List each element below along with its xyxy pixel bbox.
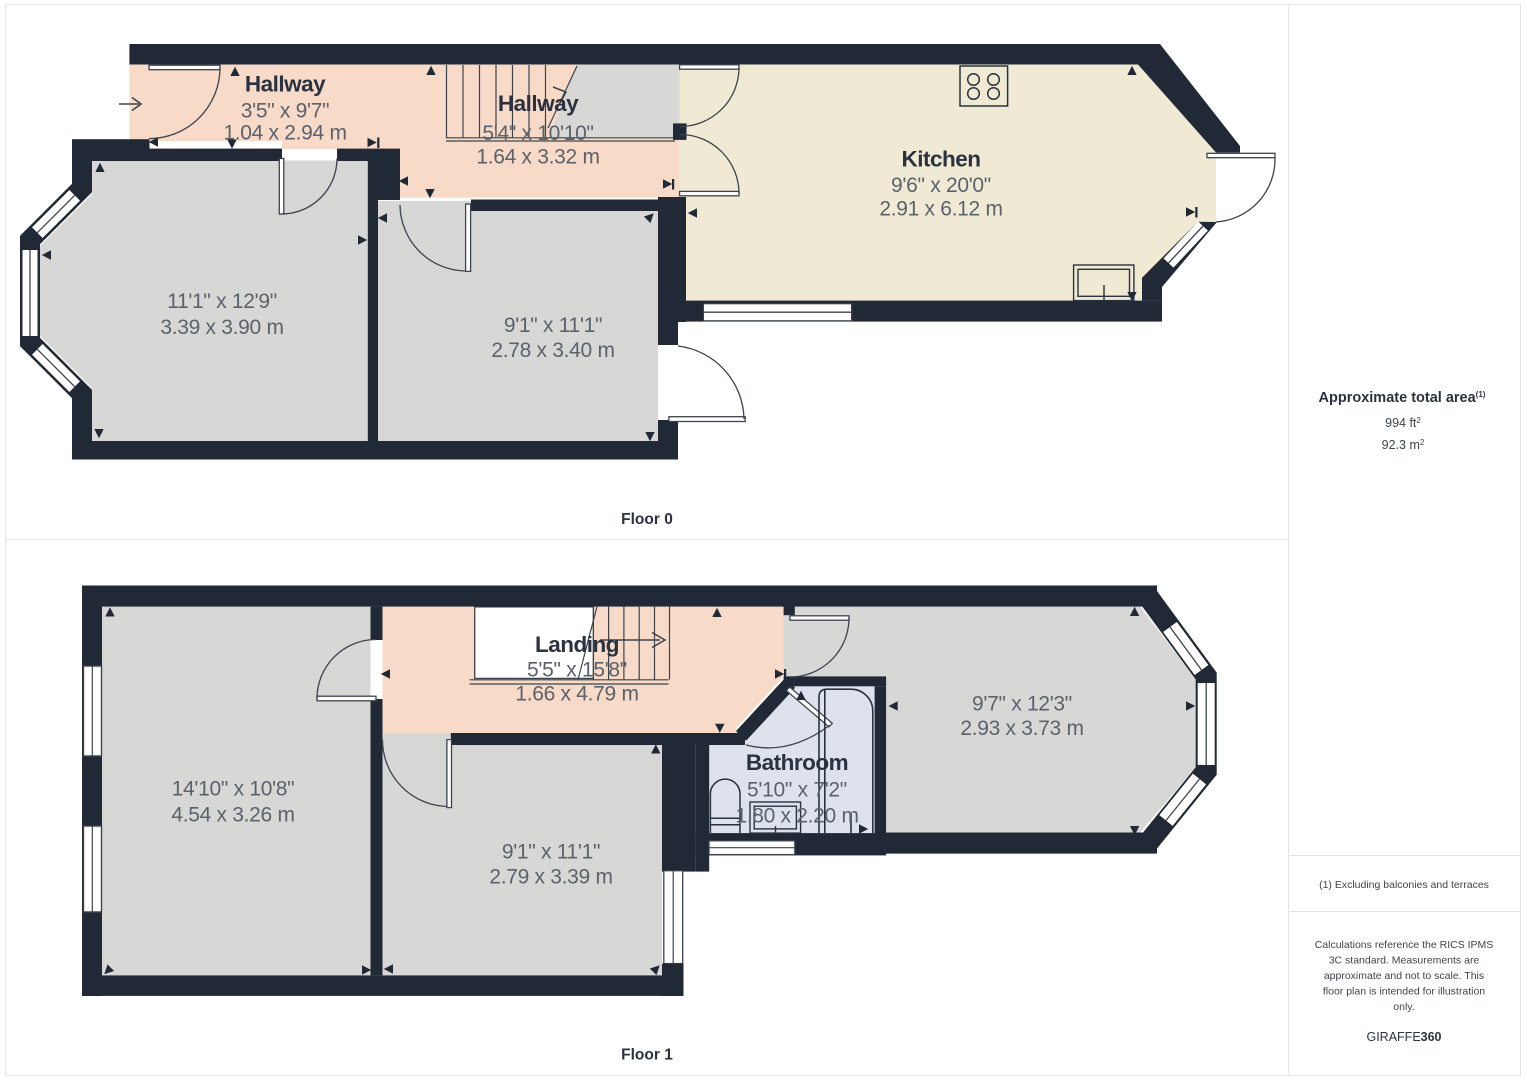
svg-text:GIRAFFE360: GIRAFFE360: [1366, 1030, 1441, 1044]
svg-text:Kitchen: Kitchen: [901, 147, 980, 172]
svg-text:5'4" x 10'10": 5'4" x 10'10": [482, 122, 593, 145]
svg-text:4.54 x 3.26 m: 4.54 x 3.26 m: [171, 804, 294, 827]
svg-text:3.39 x 3.90 m: 3.39 x 3.90 m: [160, 316, 283, 339]
svg-text:11'1" x 12'9": 11'1" x 12'9": [167, 290, 277, 313]
svg-text:only.: only.: [1393, 1001, 1414, 1013]
svg-text:2.93 x 3.73 m: 2.93 x 3.73 m: [960, 717, 1083, 740]
svg-text:1.04 x 2.94 m: 1.04 x 2.94 m: [223, 122, 346, 145]
svg-text:9'1" x 11'1": 9'1" x 11'1": [504, 314, 602, 337]
svg-text:2.79 x 3.39 m: 2.79 x 3.39 m: [489, 866, 612, 889]
svg-text:Approximate total area(1): Approximate total area(1): [1319, 390, 1486, 406]
svg-text:5'10" x 7'2": 5'10" x 7'2": [747, 779, 847, 802]
svg-text:Calculations reference the RIC: Calculations reference the RICS IPMS: [1315, 939, 1494, 951]
svg-text:9'1" x 11'1": 9'1" x 11'1": [502, 841, 600, 864]
svg-text:floor plan is intended for ill: floor plan is intended for illustration: [1323, 986, 1485, 998]
svg-text:approximate and not to scale.: approximate and not to scale. This: [1324, 970, 1484, 982]
svg-text:3C standard. Measurements are: 3C standard. Measurements are: [1329, 955, 1480, 967]
svg-text:14'10" x 10'8": 14'10" x 10'8": [172, 778, 295, 801]
svg-text:9'6" x 20'0": 9'6" x 20'0": [891, 174, 991, 197]
svg-text:Hallway: Hallway: [245, 72, 326, 97]
svg-text:2.91 x 6.12 m: 2.91 x 6.12 m: [879, 198, 1002, 221]
svg-text:Floor 1: Floor 1: [621, 1047, 673, 1064]
svg-text:1.66 x 4.79 m: 1.66 x 4.79 m: [515, 683, 638, 706]
svg-text:2.78 x 3.40 m: 2.78 x 3.40 m: [491, 339, 614, 362]
svg-text:3'5" x 9'7": 3'5" x 9'7": [241, 100, 330, 123]
svg-text:1.64 x 3.32 m: 1.64 x 3.32 m: [476, 146, 599, 169]
svg-text:9'7" x 12'3": 9'7" x 12'3": [972, 693, 1072, 716]
svg-text:Hallway: Hallway: [498, 91, 579, 116]
svg-text:92.3 m2: 92.3 m2: [1382, 438, 1425, 452]
svg-text:1.80 x 2.20 m: 1.80 x 2.20 m: [735, 805, 858, 828]
svg-text:Bathroom: Bathroom: [746, 750, 848, 775]
svg-text:5'5" x 15'8": 5'5" x 15'8": [527, 659, 627, 682]
svg-text:(1) Excluding balconies and te: (1) Excluding balconies and terraces: [1319, 879, 1489, 891]
svg-text:Floor 0: Floor 0: [621, 511, 673, 528]
svg-text:Landing: Landing: [535, 632, 619, 657]
svg-text:994 ft2: 994 ft2: [1385, 416, 1421, 430]
